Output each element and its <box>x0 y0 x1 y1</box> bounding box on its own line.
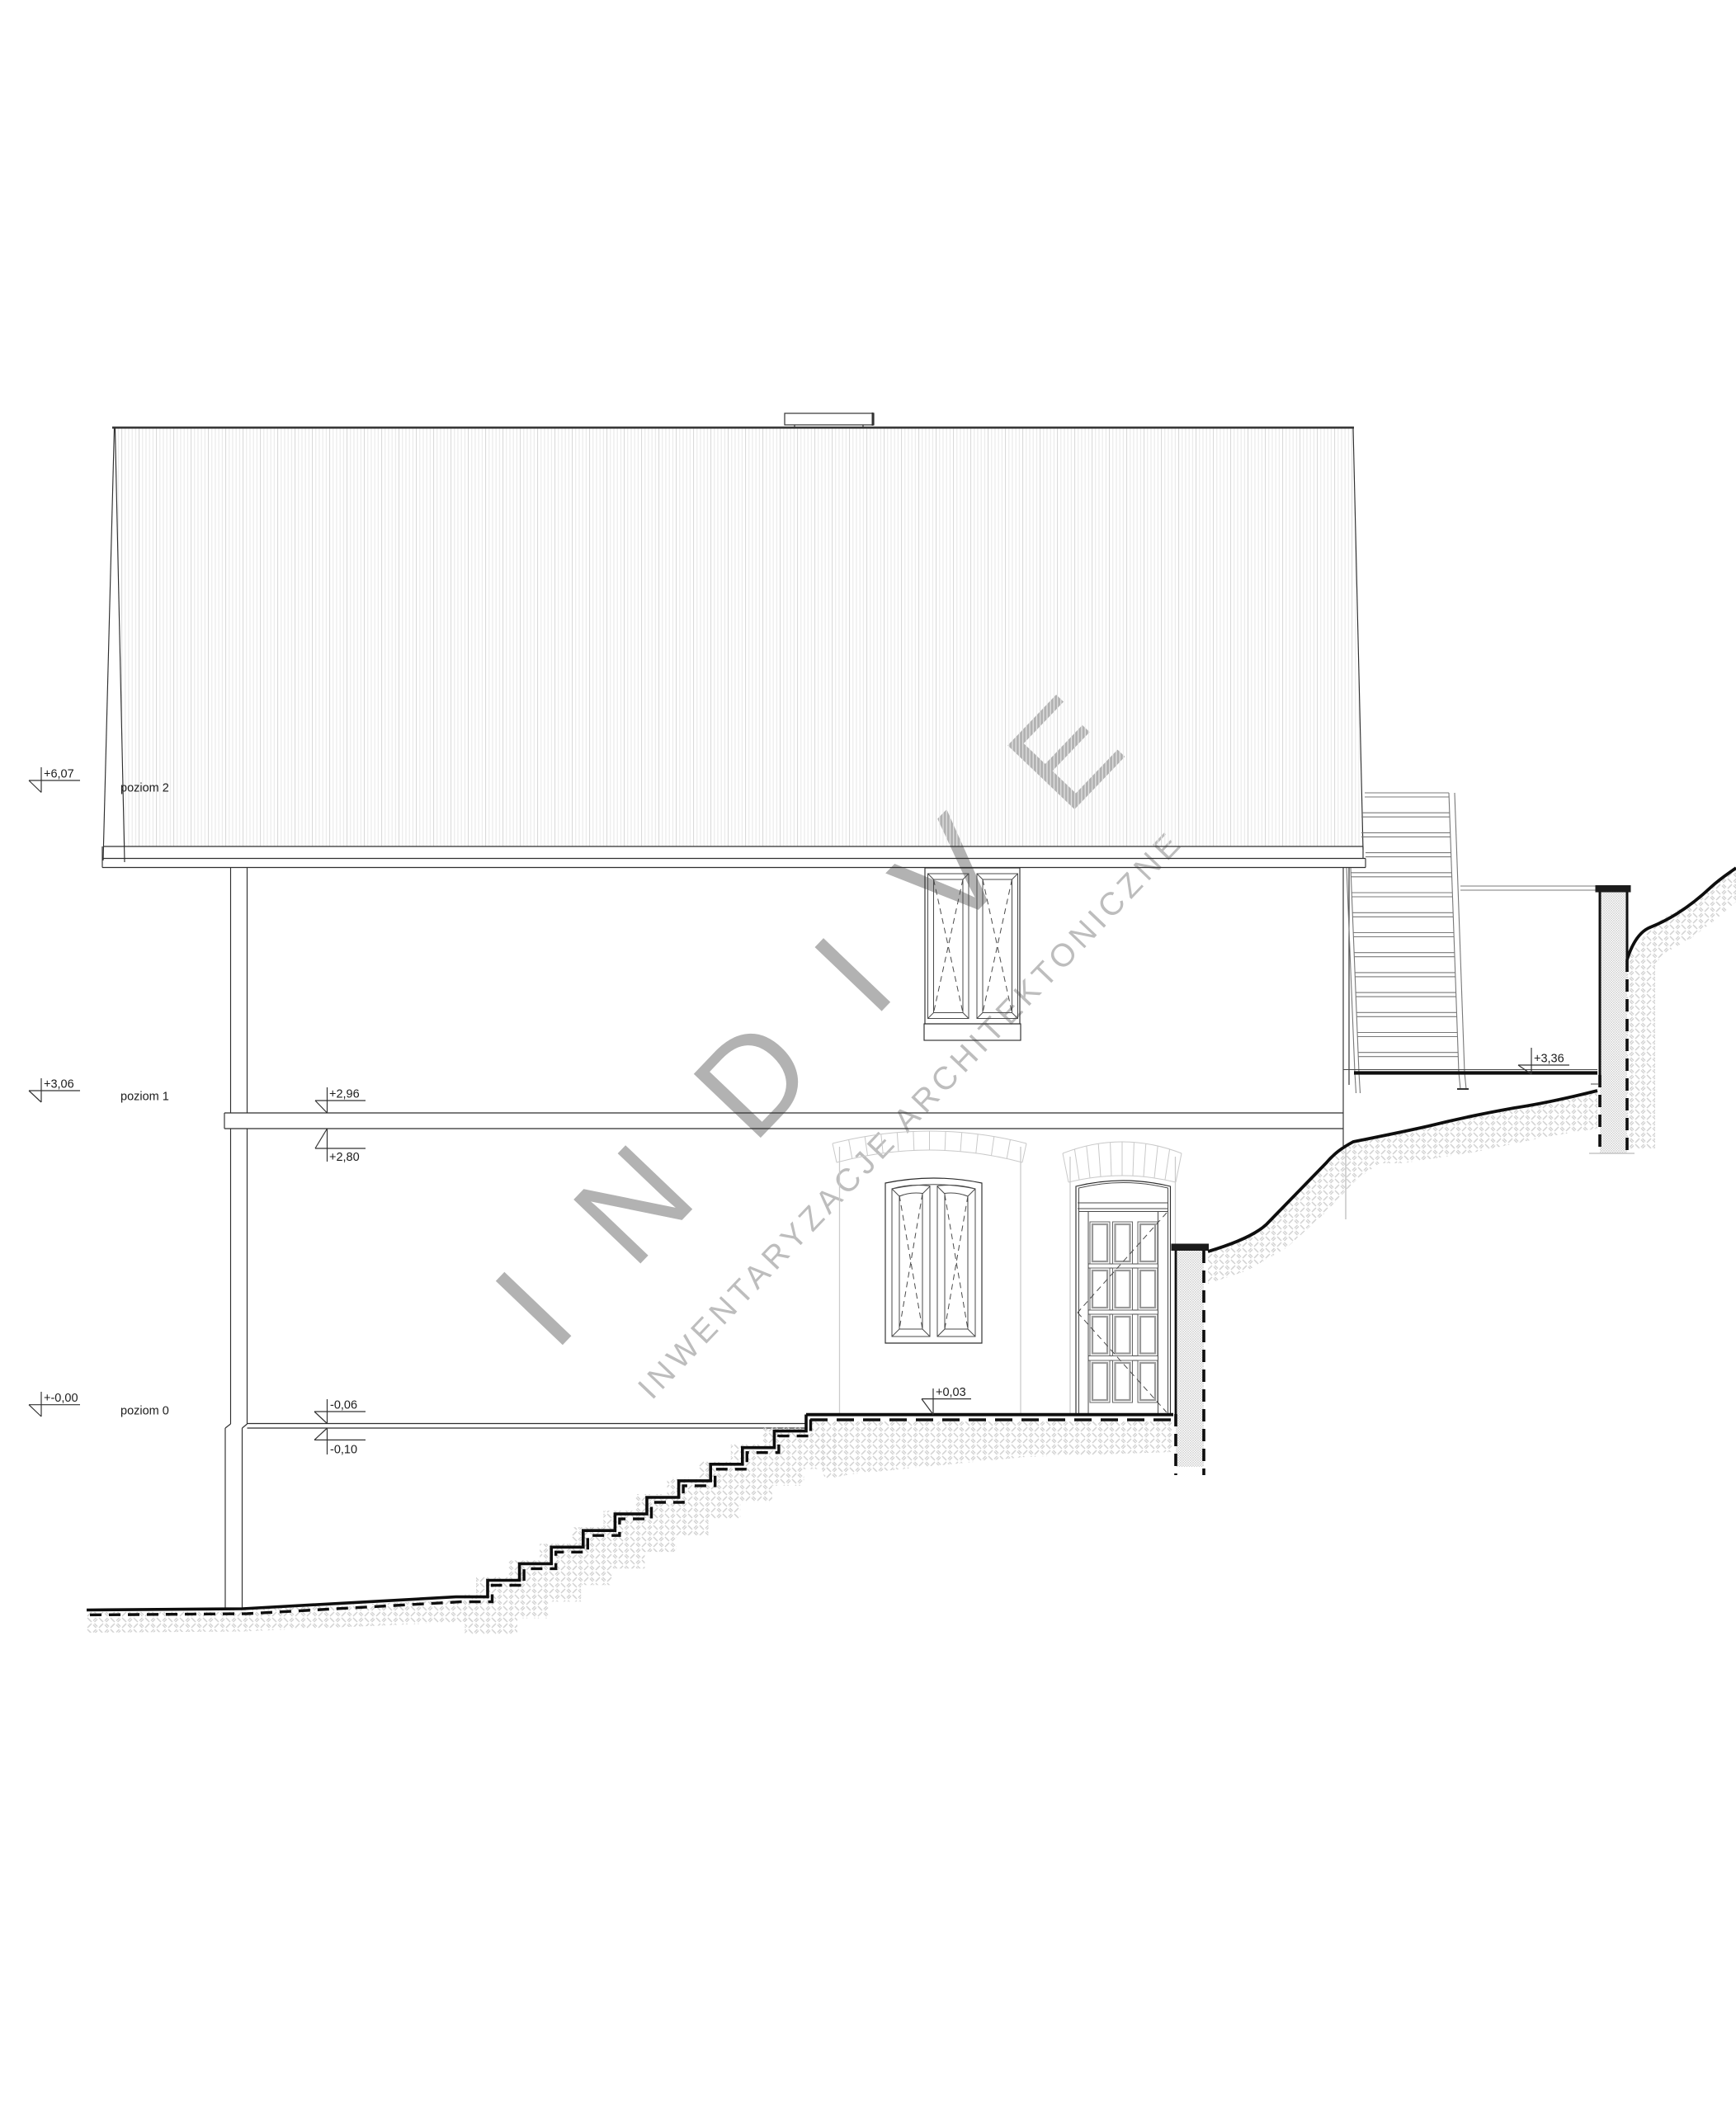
svg-text:poziom 0: poziom 0 <box>120 1405 169 1418</box>
svg-text:+2,96: +2,96 <box>329 1088 360 1101</box>
svg-text:+-0,00: +-0,00 <box>44 1392 78 1405</box>
svg-text:-0,10: -0,10 <box>330 1444 357 1457</box>
svg-text:+2,80: +2,80 <box>329 1151 360 1164</box>
svg-text:-0,06: -0,06 <box>330 1399 357 1412</box>
svg-text:poziom 2: poziom 2 <box>120 782 169 795</box>
svg-text:poziom 1: poziom 1 <box>120 1091 169 1104</box>
svg-text:+0,03: +0,03 <box>936 1386 966 1399</box>
svg-text:+3,36: +3,36 <box>1534 1053 1564 1066</box>
svg-text:+6,07: +6,07 <box>44 768 74 781</box>
svg-text:+3,06: +3,06 <box>44 1078 74 1091</box>
